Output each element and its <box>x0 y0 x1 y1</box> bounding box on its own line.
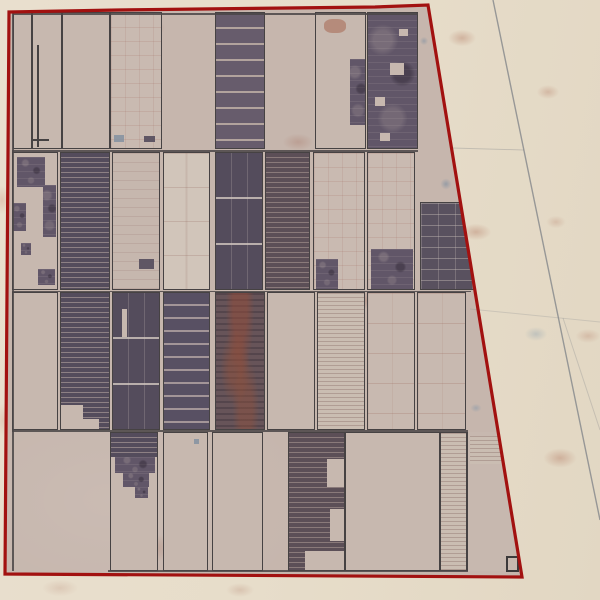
field-plot-12 <box>215 152 263 290</box>
plot-patch <box>330 509 345 541</box>
plot-patch <box>21 243 31 255</box>
plot-patch <box>37 45 39 147</box>
satellite-map-canvas[interactable] <box>0 0 600 600</box>
field-divider-line <box>12 150 418 152</box>
field-divider-line <box>12 430 468 432</box>
plot-patch <box>111 433 158 457</box>
field-divider-line <box>12 13 14 571</box>
field-plot-27 <box>163 432 208 571</box>
field-plot-30 <box>345 432 440 571</box>
field-plot-14 <box>313 152 365 290</box>
field-plot-15 <box>367 152 415 290</box>
field-plot-5 <box>215 12 265 149</box>
road-line <box>470 309 600 322</box>
plot-patch <box>115 457 155 473</box>
field-plot-23 <box>317 292 365 430</box>
plot-patch <box>327 459 345 487</box>
road-line <box>493 0 600 520</box>
field-plot-10 <box>112 152 160 290</box>
field-divider-line <box>108 570 468 572</box>
survey-area <box>0 0 600 600</box>
plot-patch <box>17 157 45 187</box>
field-plot-32 <box>467 432 513 571</box>
field-plot-7 <box>367 12 418 149</box>
plot-patch <box>194 439 199 444</box>
plot-patch <box>144 136 155 142</box>
field-plot-17 <box>12 292 58 430</box>
field-plot-20 <box>163 292 210 430</box>
plot-patch <box>371 249 413 289</box>
field-plot-4 <box>110 12 162 149</box>
field-plot-25 <box>417 292 466 430</box>
field-plot-26 <box>110 432 158 571</box>
plot-patch <box>305 551 345 571</box>
field-plot-24 <box>367 292 415 430</box>
plot-patch <box>13 203 26 231</box>
plot-patch <box>38 269 55 285</box>
field-divider-line <box>13 13 418 15</box>
plot-patch <box>33 139 49 141</box>
plot-patch <box>324 19 346 33</box>
plot-patch <box>470 436 508 464</box>
plot-patch <box>83 419 99 430</box>
plot-patch <box>316 259 338 289</box>
plot-patch <box>375 97 385 106</box>
field-plot-31 <box>440 432 467 571</box>
plot-patch <box>135 487 148 498</box>
field-plot-16 <box>420 202 475 290</box>
road-line <box>452 148 524 150</box>
road-line <box>563 318 600 430</box>
field-plot-1 <box>13 12 32 149</box>
plot-patch <box>122 309 127 337</box>
field-plot-28 <box>212 432 263 571</box>
plot-patch <box>399 29 408 36</box>
plot-patch <box>43 185 56 237</box>
field-plot-8 <box>12 152 58 290</box>
field-plot-9 <box>60 152 110 290</box>
field-plot-2 <box>32 12 62 149</box>
field-plot-13 <box>265 152 310 290</box>
field-plot-3 <box>62 12 110 149</box>
plot-patch <box>390 63 404 75</box>
field-plot-22 <box>267 292 315 430</box>
plot-patch <box>380 133 390 141</box>
field-plot-18 <box>60 292 110 430</box>
plot-patch <box>61 405 83 430</box>
plot-patch <box>123 473 149 487</box>
field-divider-line <box>12 291 471 293</box>
field-plot-19 <box>112 292 160 430</box>
field-plot-6 <box>315 12 366 149</box>
plot-patch <box>350 59 366 125</box>
field-plot-29 <box>288 432 345 571</box>
field-plot-21 <box>215 292 265 430</box>
plot-patch <box>139 259 154 269</box>
field-plot-33 <box>506 556 519 572</box>
plot-patch <box>114 135 124 142</box>
field-plot-11 <box>163 152 210 290</box>
